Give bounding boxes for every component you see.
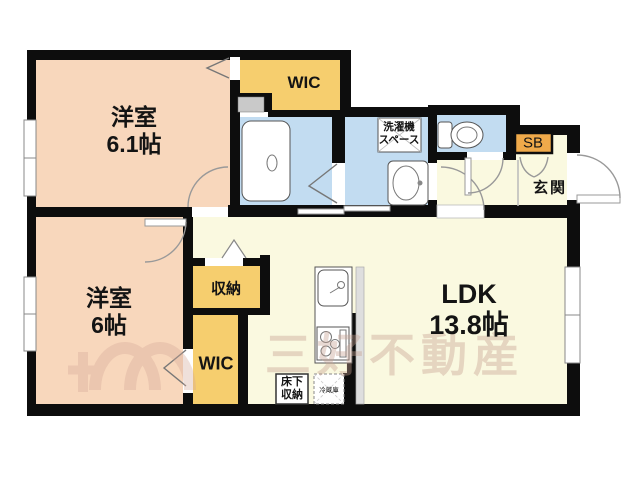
bathtub [242, 121, 290, 201]
hall-floor [437, 152, 518, 207]
laundry-space-label: 洗濯機 スペース [379, 121, 420, 147]
bedroom-lower-size: 6帖 [86, 312, 132, 339]
bedroom-lower-name: 洋室 [86, 285, 132, 312]
underfloor-line1: 床下 [281, 376, 303, 389]
storage-label: 収納 [211, 278, 241, 299]
floor-plan-drawing [0, 0, 640, 480]
kitchen-sink [318, 270, 348, 306]
window-bedroom-upper [24, 120, 36, 196]
pillar-block [238, 97, 264, 112]
underfloor-line2: 収納 [281, 389, 303, 402]
toilet [438, 122, 483, 148]
bedroom-lower-label: 洋室 6帖 [86, 285, 132, 339]
wic-upper-label: WIC [287, 73, 320, 93]
ldk-label: LDK 13.8帖 [429, 279, 509, 341]
stove [317, 327, 349, 360]
ldk-name: LDK [429, 279, 509, 310]
bedroom-upper-size: 6.1帖 [107, 131, 162, 158]
floor-plan: 三好不動産 洋室 6.1帖 WIC 洗濯機 スペース SB 玄関 洋室 6帖 収… [0, 0, 640, 480]
front-door-leaf [577, 195, 620, 203]
window-bedroom-lower [24, 277, 36, 351]
refrigerator-label: 冷蔵庫 [319, 384, 339, 394]
shoe-box-label: SB [523, 135, 543, 152]
underfloor-storage-label: 床下 収納 [281, 376, 303, 402]
bedroom-upper-name: 洋室 [107, 104, 162, 131]
entrance-label: 玄関 [533, 177, 567, 198]
laundry-space-line2: スペース [379, 134, 420, 147]
window-ldk [565, 267, 580, 363]
bedroom-lower-door-leaf [145, 219, 186, 226]
front-door-arc [577, 155, 620, 198]
wic-lower-label: WIC [199, 354, 234, 375]
toilet-door-leaf [465, 158, 471, 195]
laundry-space-line1: 洗濯機 [379, 121, 420, 134]
washbasin [388, 161, 428, 205]
bedroom-upper-label: 洋室 6.1帖 [107, 104, 162, 158]
ldk-size: 13.8帖 [429, 310, 509, 341]
kitchen-panel [356, 267, 364, 404]
